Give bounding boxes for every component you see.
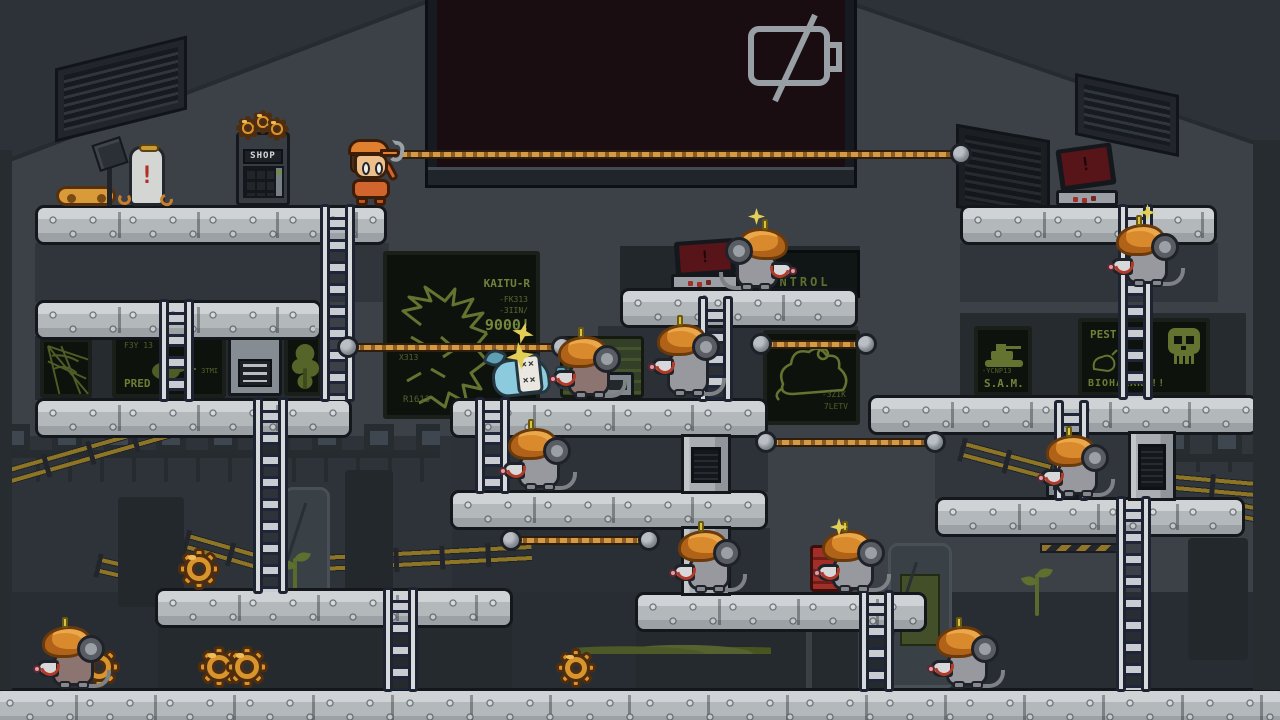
gear-highlight: [208, 653, 216, 658]
mouse-hat-antenna: [1136, 215, 1142, 226]
rat-glyphs: 7LETV: [824, 402, 848, 411]
platform: [450, 490, 768, 530]
predator-glyphs: F3Y 13: [124, 341, 153, 350]
mouse-hat-antenna: [698, 521, 704, 532]
mouse-hat-antenna: [528, 419, 534, 430]
worker-mouse[interactable]: [728, 234, 790, 290]
big-screen-bezel: [428, 167, 854, 185]
ladder[interactable]: [161, 303, 192, 400]
mouse-foot: [953, 681, 965, 689]
gear-highlight: [271, 121, 276, 124]
shop-slots: [243, 166, 277, 198]
board-spot: [67, 194, 76, 203]
worker-mouse[interactable]: [655, 330, 717, 396]
ladder[interactable]: [861, 594, 892, 690]
platform-surface: [942, 504, 1238, 530]
big-status-screen: [425, 0, 857, 188]
player-character[interactable]: [344, 139, 404, 206]
pest-mouse-art: [1090, 348, 1118, 374]
background-pod: [806, 626, 864, 688]
platform: [155, 588, 513, 628]
player-cap-brim: [380, 149, 400, 157]
mouse-hat-antenna: [956, 617, 962, 628]
mouse-ear: [725, 237, 753, 265]
worker-mouse[interactable]: [934, 632, 996, 688]
mouse-ear: [971, 635, 999, 663]
platform-surface: [627, 295, 851, 321]
mouse-ear: [77, 635, 105, 663]
mouse-ear: [593, 345, 621, 373]
player-eye: [362, 162, 370, 175]
platform-surface: [162, 595, 506, 621]
rope-anchor: [924, 431, 946, 453]
gear-hole: [192, 562, 205, 575]
battery-empty-icon: [743, 13, 863, 105]
game-viewport[interactable]: KAITU-R -FK313 -3IIN/ 9000! X313 R1613 C…: [0, 0, 1280, 720]
gear-pickup[interactable]: [226, 646, 268, 688]
rope-anchor: [855, 333, 877, 355]
mouse-foot: [1063, 490, 1075, 498]
zipline-rope[interactable]: [769, 438, 932, 447]
big-screen-display: [437, 0, 845, 167]
mouse-foot: [759, 283, 771, 291]
mouse-foot: [543, 483, 555, 491]
rope-anchor: [337, 336, 359, 358]
duct-vent: [1138, 444, 1166, 490]
vent-slats: [1084, 84, 1170, 146]
mouse-hat-antenna: [62, 617, 68, 628]
kaiju-line1: -FK313: [499, 295, 528, 304]
monitor-plant: [284, 333, 322, 396]
monitor-sam: -YCNP13 S.A.M.: [974, 326, 1032, 396]
shop-label: SHOP: [250, 151, 276, 161]
platform: [960, 205, 1217, 245]
mouse-hat-antenna: [677, 315, 683, 326]
ceiling-corner-shade-right: [840, 0, 1280, 152]
kaiju-title: KAITU-R: [484, 277, 530, 290]
shop-machine[interactable]: SHOP: [236, 132, 290, 206]
worker-mouse[interactable]: [1044, 441, 1106, 497]
player-eye: [375, 162, 383, 175]
mouse-foot: [1081, 490, 1093, 498]
canister-cap: [139, 144, 159, 152]
duct-pillar: [681, 434, 731, 494]
mouse-foot: [713, 585, 725, 593]
predator-glyphs: 3TMI: [201, 367, 218, 375]
mouse-ear: [713, 539, 741, 567]
hazard-stripe-rail: [1040, 543, 1126, 553]
worker-mouse[interactable]: [1114, 230, 1176, 286]
mouse-foot: [971, 681, 983, 689]
gear-highlight: [257, 114, 262, 117]
player-leg: [356, 197, 368, 206]
mouse-ear: [1151, 233, 1179, 261]
mouse-foot: [692, 389, 704, 397]
laptop-base: [1056, 190, 1118, 206]
zipline-rope[interactable]: [398, 150, 958, 159]
sign-pole: [107, 164, 112, 206]
mouse-hat-antenna: [1066, 426, 1072, 437]
vent-slats: [965, 134, 1041, 213]
mouse-foot: [593, 391, 605, 399]
mouse-hat-antenna: [578, 327, 584, 338]
platform: [935, 497, 1245, 537]
rope-anchor: [500, 529, 522, 551]
gear-pickup[interactable]: [178, 548, 220, 590]
zipline-rope[interactable]: [764, 340, 863, 349]
ladder[interactable]: [385, 591, 416, 690]
mouse-foot: [741, 283, 753, 291]
platform-surface: [457, 497, 761, 523]
mouse-hat-antenna: [762, 219, 768, 230]
laptop-alert: !: [1061, 147, 1111, 186]
ladder[interactable]: [477, 401, 508, 492]
platform: [0, 688, 1280, 720]
shop-keypad: [274, 166, 284, 198]
rope-anchor: [638, 529, 660, 551]
wall-edge-right: [1253, 140, 1280, 690]
platform: [35, 398, 352, 438]
kaiju-line2: -3IIN/: [499, 306, 528, 315]
predator-label: PRED: [124, 377, 151, 390]
mouse-foot: [59, 681, 71, 689]
worker-mouse[interactable]: [820, 536, 882, 592]
mouse-foot: [695, 585, 707, 593]
worker-mouse[interactable]: [676, 536, 738, 592]
rope-anchor: [950, 143, 972, 165]
mouse-foot: [1151, 279, 1163, 287]
rope-anchor: [755, 431, 777, 453]
ko-eyes-row: ××: [519, 372, 541, 390]
mouse-ear: [857, 539, 885, 567]
tow-hook-icon: [118, 193, 131, 205]
sam-glyphs: -YCNP13: [982, 367, 1012, 375]
board-spot: [97, 194, 106, 203]
laptop-stains: [688, 281, 693, 286]
mouse-ear: [1081, 444, 1109, 472]
zipline-rope[interactable]: [514, 536, 646, 545]
kaiju-glyphs: R1613: [403, 395, 430, 405]
sam-label: S.A.M.: [984, 377, 1024, 390]
platform-surface: [0, 695, 1280, 720]
gear-pickup[interactable]: [556, 648, 596, 688]
worker-mouse[interactable]: [556, 342, 618, 398]
alert-laptop[interactable]: !: [1056, 146, 1118, 206]
canister-alert: !: [140, 161, 154, 189]
player-body: [352, 179, 390, 199]
laptop-alert: !: [679, 242, 731, 272]
wall-edge-left: [0, 150, 12, 690]
plant-sprout: [1024, 568, 1050, 616]
gear-highlight: [188, 555, 196, 560]
gear-hole: [240, 660, 253, 673]
mouse-foot: [525, 483, 537, 491]
gear-hole: [212, 660, 225, 673]
mouse-ear: [692, 333, 720, 361]
gear-pickup[interactable]: [265, 117, 289, 141]
skull-icon: [1164, 326, 1204, 376]
rope-anchor: [750, 333, 772, 355]
laptop-stains: [1073, 197, 1078, 202]
ladder[interactable]: [322, 208, 353, 400]
monitor-spiderweb: [40, 338, 92, 398]
mouse-foot: [575, 391, 587, 399]
duct-vent: [691, 447, 721, 483]
ladder[interactable]: [1118, 500, 1149, 690]
gear-highlight: [566, 655, 574, 659]
ladder[interactable]: [255, 401, 286, 592]
rat-glyphs: -3ZIK: [822, 390, 846, 399]
shop-sign: SHOP: [243, 149, 283, 164]
mouse-foot: [674, 389, 686, 397]
mouse-foot: [1133, 279, 1145, 287]
wall-vent-box: [228, 332, 282, 396]
mouse-foot: [857, 585, 869, 593]
vent-grill: [238, 359, 272, 387]
mouse-foot: [77, 681, 89, 689]
gear-highlight: [242, 120, 247, 123]
worker-mouse[interactable]: [506, 434, 568, 490]
kaiju-glyphs: X313: [399, 353, 418, 362]
player-leg: [374, 197, 386, 206]
platform-surface: [42, 405, 345, 431]
mouse-foot: [839, 585, 851, 593]
background-column: [1188, 538, 1248, 660]
moss-patch: [575, 640, 771, 654]
gear-hole: [273, 125, 281, 133]
mouse-ear: [543, 437, 571, 465]
platform: [620, 288, 858, 328]
laptop-screen: !: [1055, 142, 1116, 191]
worker-mouse[interactable]: [40, 632, 102, 688]
duct-pillar: [1128, 431, 1176, 501]
gear-highlight: [236, 653, 244, 658]
